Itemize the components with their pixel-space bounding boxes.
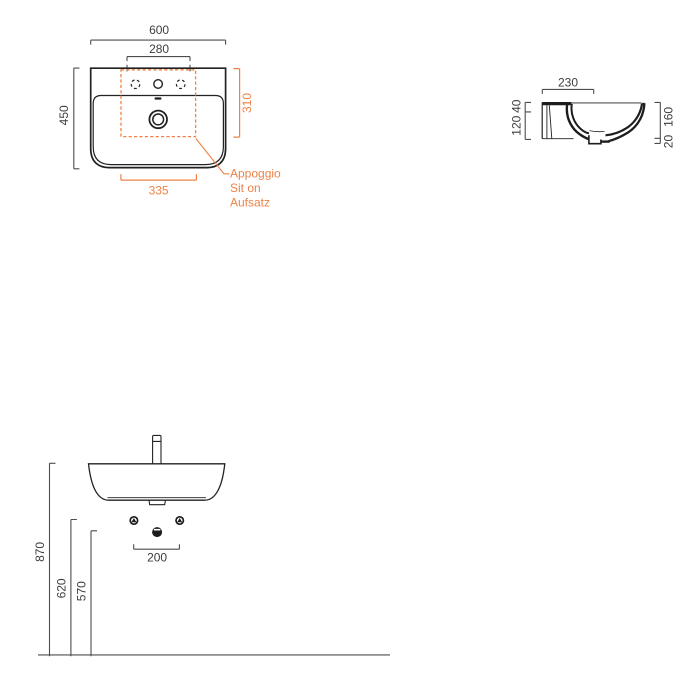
svg-text:160: 160 (662, 107, 676, 127)
svg-text:Appoggio: Appoggio (230, 166, 281, 180)
svg-text:230: 230 (558, 75, 578, 89)
svg-text:620: 620 (55, 578, 69, 598)
svg-text:335: 335 (149, 184, 169, 198)
svg-text:570: 570 (75, 581, 89, 601)
svg-text:200: 200 (147, 550, 167, 564)
svg-text:870: 870 (33, 542, 47, 562)
svg-text:310: 310 (240, 93, 254, 113)
svg-text:120: 120 (510, 115, 524, 135)
svg-text:Sit on: Sit on (230, 181, 261, 195)
svg-text:450: 450 (57, 105, 71, 125)
svg-text:280: 280 (149, 42, 169, 56)
svg-text:600: 600 (149, 23, 169, 37)
svg-text:40: 40 (510, 99, 524, 113)
svg-text:20: 20 (662, 135, 676, 149)
svg-text:Aufsatz: Aufsatz (230, 195, 270, 209)
